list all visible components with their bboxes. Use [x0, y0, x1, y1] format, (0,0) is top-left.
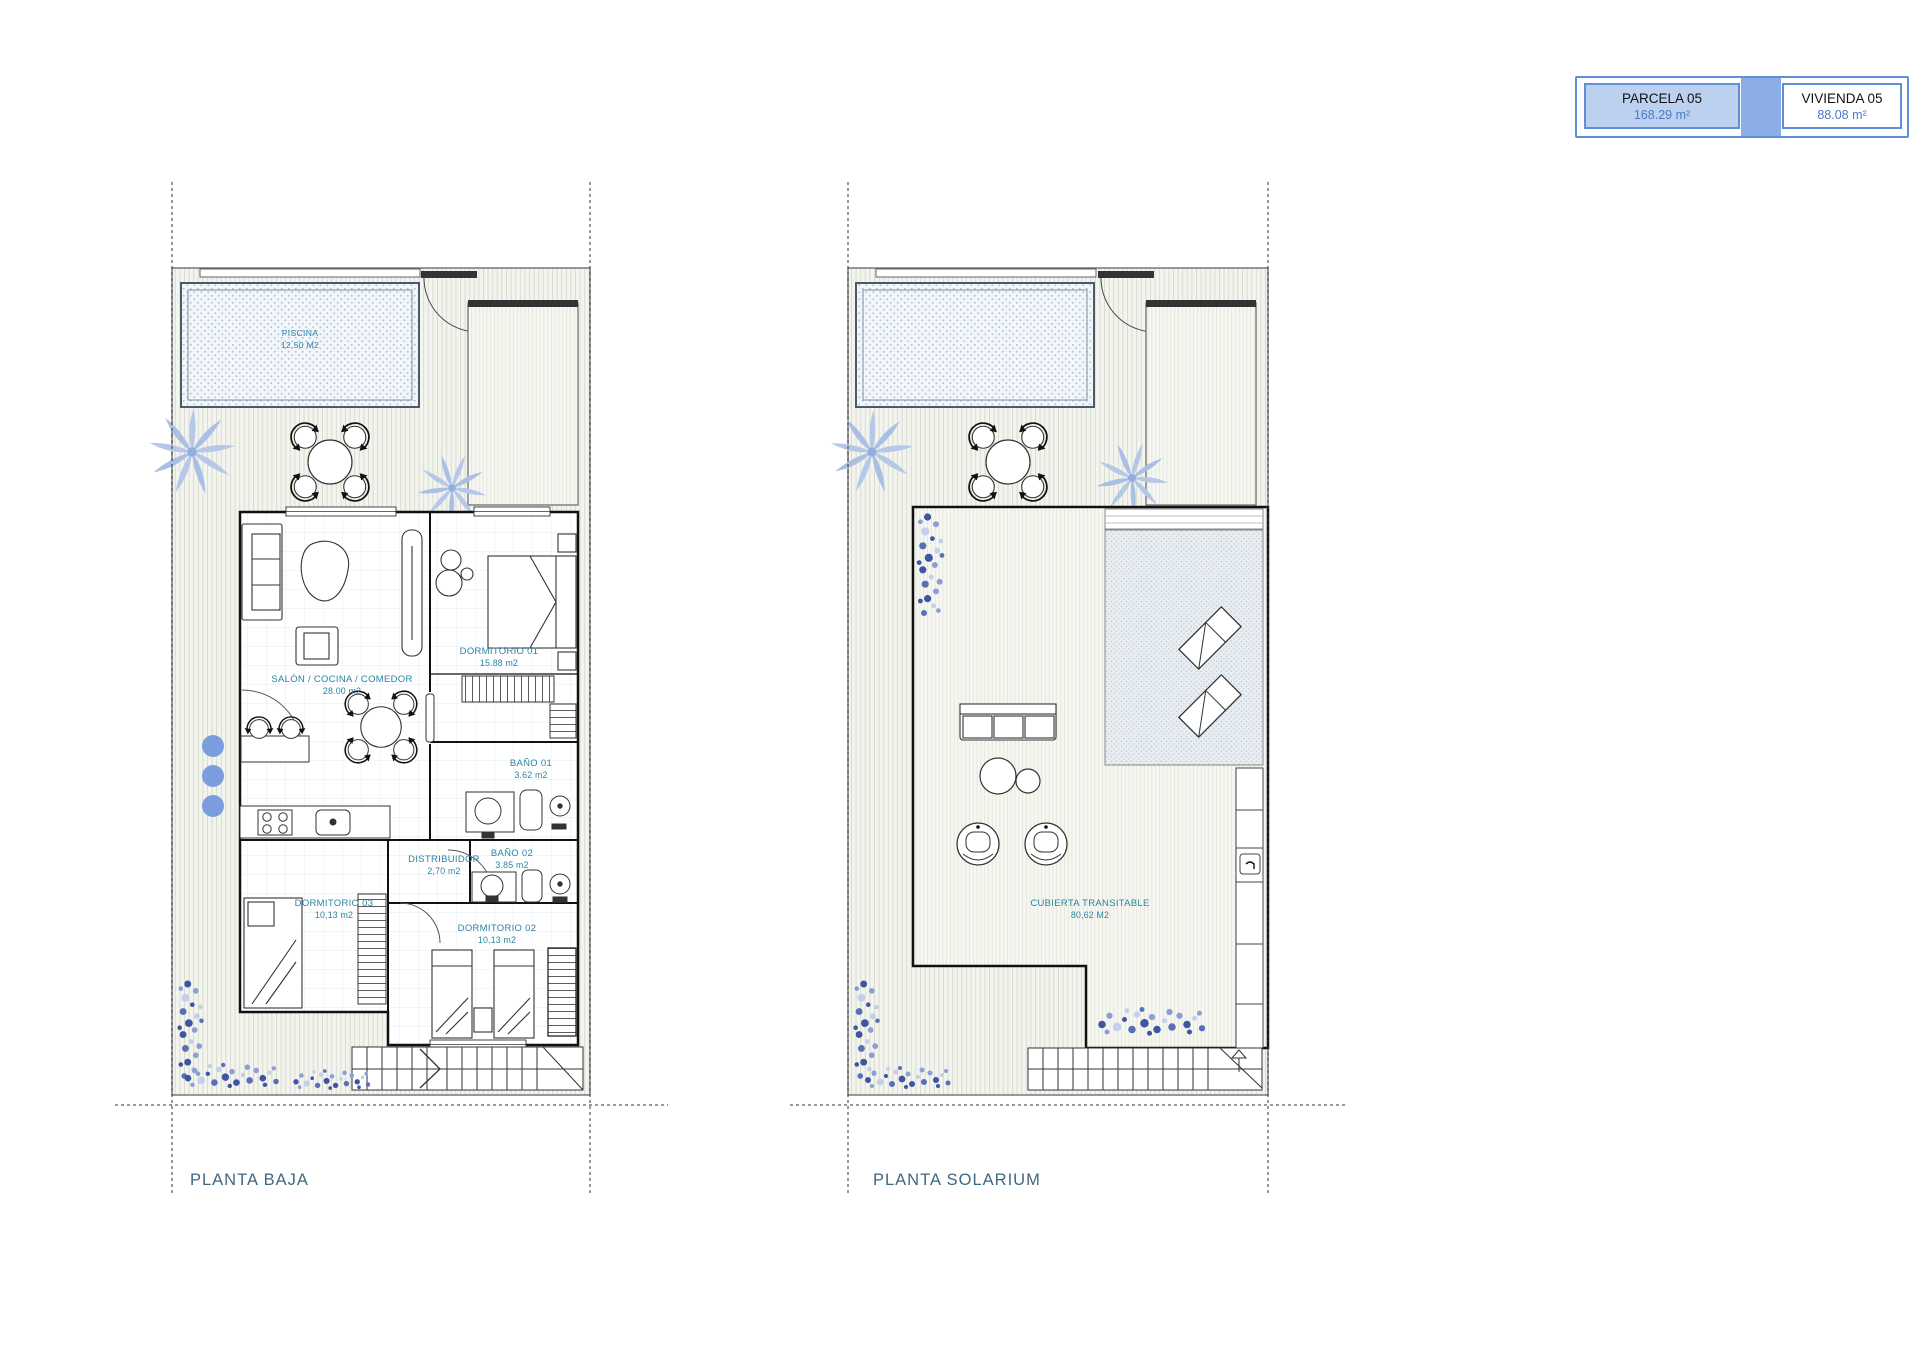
room-label: SALÓN / COCINA / COMEDOR	[271, 674, 412, 685]
svg-text:3.62 m2: 3.62 m2	[514, 770, 547, 780]
planter-strip	[1236, 768, 1263, 1048]
planta-baja-plan: PISCINA 12.50 M2	[115, 182, 668, 1195]
legend-parcela-cell: PARCELA 05 168.29 m²	[1584, 83, 1740, 129]
room-label: BAÑO 01	[510, 758, 552, 769]
pergola-area	[1105, 509, 1263, 765]
svg-text:10,13 m2: 10,13 m2	[478, 935, 516, 945]
pool: PISCINA 12.50 M2	[181, 283, 419, 407]
planta-solarium-title: PLANTA SOLARIUM	[873, 1171, 1041, 1189]
room-label: DORMITORIO 02	[458, 923, 537, 934]
gate-leaf	[1098, 271, 1154, 278]
svg-text:28.00 m2: 28.00 m2	[323, 686, 361, 696]
drawing-sheet: PARCELA 05 168.29 m² VIVIENDA 05 88.08 m…	[0, 0, 1920, 1357]
wardrobe	[548, 948, 576, 1036]
svg-text:15.88 m2: 15.88 m2	[480, 658, 518, 668]
floorplan-canvas: PISCINA 12.50 M2	[0, 0, 1920, 1357]
svg-text:80,62 M2: 80,62 M2	[1071, 910, 1109, 920]
solarium-stairs	[1028, 1048, 1262, 1090]
lounge-chair	[1025, 823, 1067, 865]
room-label: DISTRIBUIDOR	[408, 854, 480, 865]
coffee-table	[980, 758, 1016, 794]
fence	[200, 269, 420, 277]
svg-text:2,70 m2: 2,70 m2	[427, 866, 460, 876]
room-label: BAÑO 02	[491, 848, 533, 859]
room-label: CUBIERTA TRANSITABLE	[1030, 898, 1149, 909]
wardrobe	[550, 704, 576, 738]
vivienda-label: VIVIENDA 05	[1801, 91, 1882, 106]
carport	[1146, 300, 1256, 505]
pool	[856, 283, 1094, 407]
fence	[876, 269, 1096, 277]
planta-solarium-plan: CUBIERTA TRANSITABLE 80,62 M2	[790, 182, 1345, 1195]
vivienda-area: 88.08 m²	[1817, 108, 1866, 122]
side-table	[1016, 769, 1040, 793]
legend-gap	[1741, 78, 1781, 136]
solarium-sofa	[960, 704, 1056, 740]
entry-stairs	[352, 1047, 583, 1090]
pool-name: PISCINA	[282, 328, 318, 338]
plant-pot	[202, 735, 224, 757]
room-label: DORMITORIO 03	[295, 898, 374, 909]
bedroom3-furniture	[244, 898, 302, 1008]
legend: PARCELA 05 168.29 m² VIVIENDA 05 88.08 m…	[1575, 76, 1909, 138]
plant-pot	[202, 765, 224, 787]
svg-text:3.85 m2: 3.85 m2	[495, 860, 528, 870]
gate-leaf	[421, 271, 477, 278]
pool-area: 12.50 M2	[281, 340, 319, 350]
svg-text:10,13 m2: 10,13 m2	[315, 910, 353, 920]
shower-icon	[1240, 854, 1260, 874]
wardrobe	[462, 676, 554, 702]
lounge-chair	[957, 823, 999, 865]
carport	[468, 300, 578, 505]
planta-baja-title: PLANTA BAJA	[190, 1171, 309, 1189]
parcela-area: 168.29 m²	[1634, 108, 1690, 122]
wardrobe	[358, 894, 386, 1004]
legend-vivienda-cell: VIVIENDA 05 88.08 m²	[1782, 83, 1902, 129]
plant-pot	[202, 795, 224, 817]
room-label: DORMITORIO 01	[460, 646, 539, 657]
parcela-label: PARCELA 05	[1622, 91, 1702, 106]
